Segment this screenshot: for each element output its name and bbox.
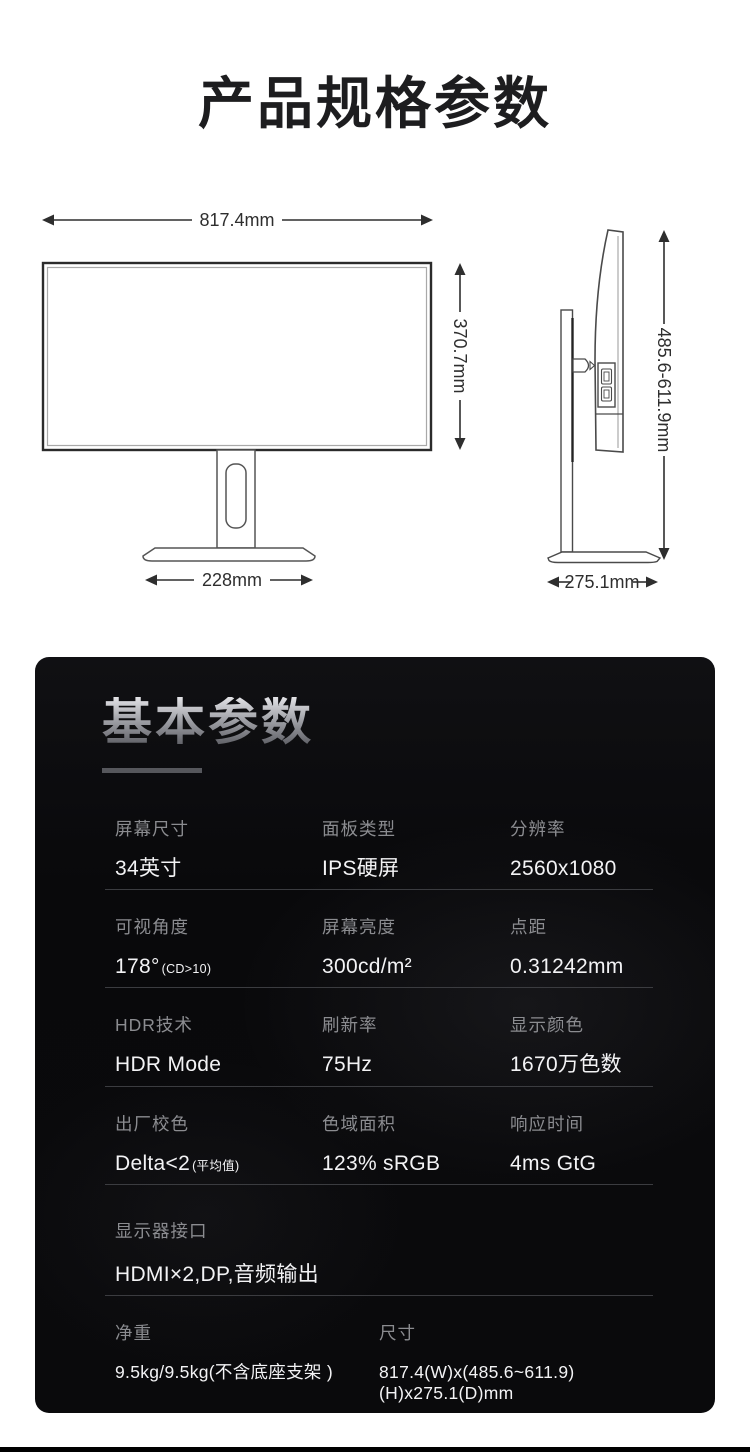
spec-value: 123% sRGB [322,1151,510,1176]
spec-cell: 分辨率 2560x1080 [510,819,653,881]
spec-row: 出厂校色 Delta<2(平均值) 色域面积 123% sRGB 响应时间 4m… [105,1087,653,1185]
spec-value: 34英寸 [115,856,322,881]
spec-value-text: 123% sRGB [322,1152,440,1175]
spec-value-note: (平均值) [192,1159,239,1173]
spec-cell: 显示器接口 HDMI×2,DP,音频输出 [105,1221,653,1287]
side-depth-dimension-label: 275.1mm [564,572,639,592]
spec-value: 1670万色数 [510,1052,653,1077]
spec-cell: 出厂校色 Delta<2(平均值) [105,1114,322,1176]
spec-value-text: HDMI×2,DP,音频输出 [115,1263,319,1286]
spec-label: 净重 [115,1323,379,1344]
spec-value-text: IPS硬屏 [322,857,399,880]
spec-cell: HDR技术 HDR Mode [105,1015,322,1077]
dimension-diagram: 817.4mm 370.7mm 228mm [0,200,750,630]
spec-row: 净重 9.5kg/9.5kg(不含底座支架 ) 尺寸 817.4(W)x(485… [105,1296,653,1412]
spec-row: 屏幕尺寸 34英寸 面板类型 IPS硬屏 分辨率 2560x1080 [105,792,653,890]
spec-label: 出厂校色 [115,1114,322,1135]
spec-value: 817.4(W)x(485.6~611.9)(H)x275.1(D)mm [379,1362,653,1404]
spec-label: 刷新率 [322,1015,510,1036]
spec-label: 屏幕尺寸 [115,819,322,840]
spec-value-text: 75Hz [322,1053,372,1076]
panel-heading: 基本参数 [102,697,715,747]
spec-value-text: Delta<2 [115,1152,190,1175]
spec-label: 屏幕亮度 [322,917,510,938]
spec-value: 2560x1080 [510,856,653,881]
spec-value: 300cd/m² [322,954,510,979]
spec-label: 可视角度 [115,917,322,938]
spec-value-text: 9.5kg/9.5kg(不含底座支架 ) [115,1362,333,1382]
spec-row: HDR技术 HDR Mode 刷新率 75Hz 显示颜色 1670万色数 [105,988,653,1086]
spec-cell: 刷新率 75Hz [322,1015,510,1077]
spec-value: HDMI×2,DP,音频输出 [115,1262,653,1287]
spec-label: 分辨率 [510,819,653,840]
spec-value: 4ms GtG [510,1151,653,1176]
spec-value-text: 34英寸 [115,857,182,880]
spec-value-note: (CD>10) [162,962,212,976]
spec-cell: 显示颜色 1670万色数 [510,1015,653,1077]
spec-table: 屏幕尺寸 34英寸 面板类型 IPS硬屏 分辨率 2560x1080 可视角度 … [105,792,653,1412]
spec-cell: 点距 0.31242mm [510,917,653,979]
spec-label: HDR技术 [115,1015,322,1036]
spec-label: 响应时间 [510,1114,653,1135]
spec-label: 面板类型 [322,819,510,840]
spec-value-text: 4ms GtG [510,1152,596,1175]
spec-value-text: 817.4(W)x(485.6~611.9)(H)x275.1(D)mm [379,1362,574,1403]
spec-value-text: 2560x1080 [510,857,617,880]
spec-value: 75Hz [322,1052,510,1077]
page-title: 产品规格参数 [0,72,750,136]
monitor-front-view-diagram: 817.4mm 370.7mm 228mm [20,200,490,600]
spec-label: 显示器接口 [115,1221,653,1242]
front-width-dimension-label: 817.4mm [199,210,274,230]
spec-cell: 面板类型 IPS硬屏 [322,819,510,881]
basic-parameters-panel: 基本参数 屏幕尺寸 34英寸 面板类型 IPS硬屏 分辨率 2560x1080 … [35,657,715,1413]
spec-value: IPS硬屏 [322,856,510,881]
spec-row: 显示器接口 HDMI×2,DP,音频输出 [105,1185,653,1296]
spec-cell: 尺寸 817.4(W)x(485.6~611.9)(H)x275.1(D)mm [379,1323,653,1404]
spec-cell: 屏幕亮度 300cd/m² [322,917,510,979]
spec-value-text: HDR Mode [115,1053,221,1076]
spec-cell: 色域面积 123% sRGB [322,1114,510,1176]
spec-value: 0.31242mm [510,954,653,979]
spec-value: HDR Mode [115,1052,322,1077]
spec-value-text: 1670万色数 [510,1053,622,1076]
spec-value: 9.5kg/9.5kg(不含底座支架 ) [115,1362,379,1383]
spec-value-text: 300cd/m² [322,955,412,978]
front-base-dimension-label: 228mm [202,570,262,590]
spec-cell: 响应时间 4ms GtG [510,1114,653,1176]
next-section-edge [0,1447,750,1452]
side-height-dimension-label: 485.6-611.9mm [654,328,674,453]
spec-label: 色域面积 [322,1114,510,1135]
spec-cell: 可视角度 178°(CD>10) [105,917,322,979]
spec-value-text: 178° [115,955,160,978]
spec-label: 尺寸 [379,1323,653,1344]
spec-value: 178°(CD>10) [115,954,322,979]
spec-cell: 净重 9.5kg/9.5kg(不含底座支架 ) [105,1323,379,1404]
front-height-dimension-label: 370.7mm [450,318,470,393]
spec-value: Delta<2(平均值) [115,1151,322,1176]
spec-label: 点距 [510,917,653,938]
spec-cell: 屏幕尺寸 34英寸 [105,819,322,881]
spec-row: 可视角度 178°(CD>10) 屏幕亮度 300cd/m² 点距 0.3124… [105,890,653,988]
monitor-side-view-diagram: 485.6-611.9mm 275.1mm [540,210,740,610]
spec-value-text: 0.31242mm [510,955,624,978]
heading-underline [102,768,202,773]
spec-label: 显示颜色 [510,1015,653,1036]
